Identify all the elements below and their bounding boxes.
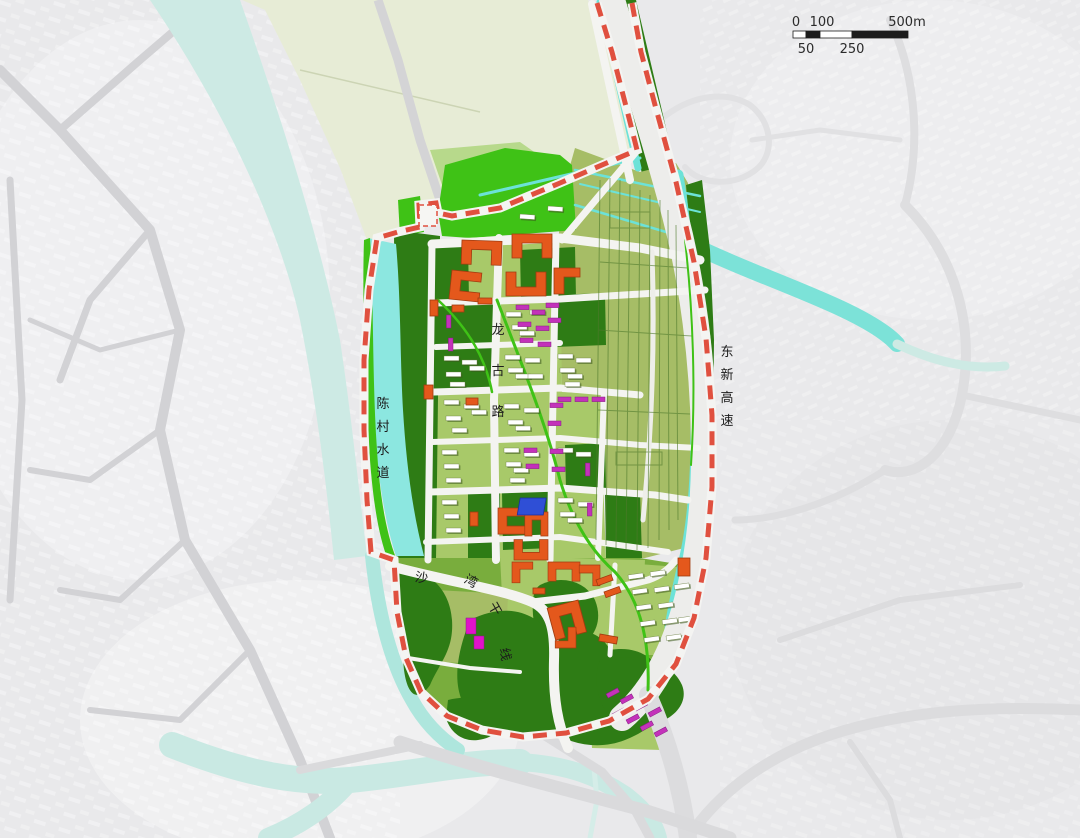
scale-label-250: 250 (840, 42, 865, 57)
scale-bar-graphic (793, 31, 908, 38)
scale-label-0: 0 (792, 15, 800, 30)
scale-label-50: 50 (798, 42, 815, 57)
label-longgu-road: 龙古路 (491, 323, 504, 420)
building-blue (517, 498, 546, 515)
svg-text:线: 线 (496, 647, 513, 662)
scale-label-100: 100 (810, 15, 835, 30)
scale-label-500m: 500m (888, 15, 925, 30)
plan-map: 陈村水道 东新高速 龙古路 沙 湾 干 线 0 100 500m 50 250 (0, 0, 1080, 838)
svg-text:沙: 沙 (414, 570, 429, 587)
plan-map-stage: 陈村水道 东新高速 龙古路 沙 湾 干 线 0 100 500m 50 250 (0, 0, 1080, 838)
